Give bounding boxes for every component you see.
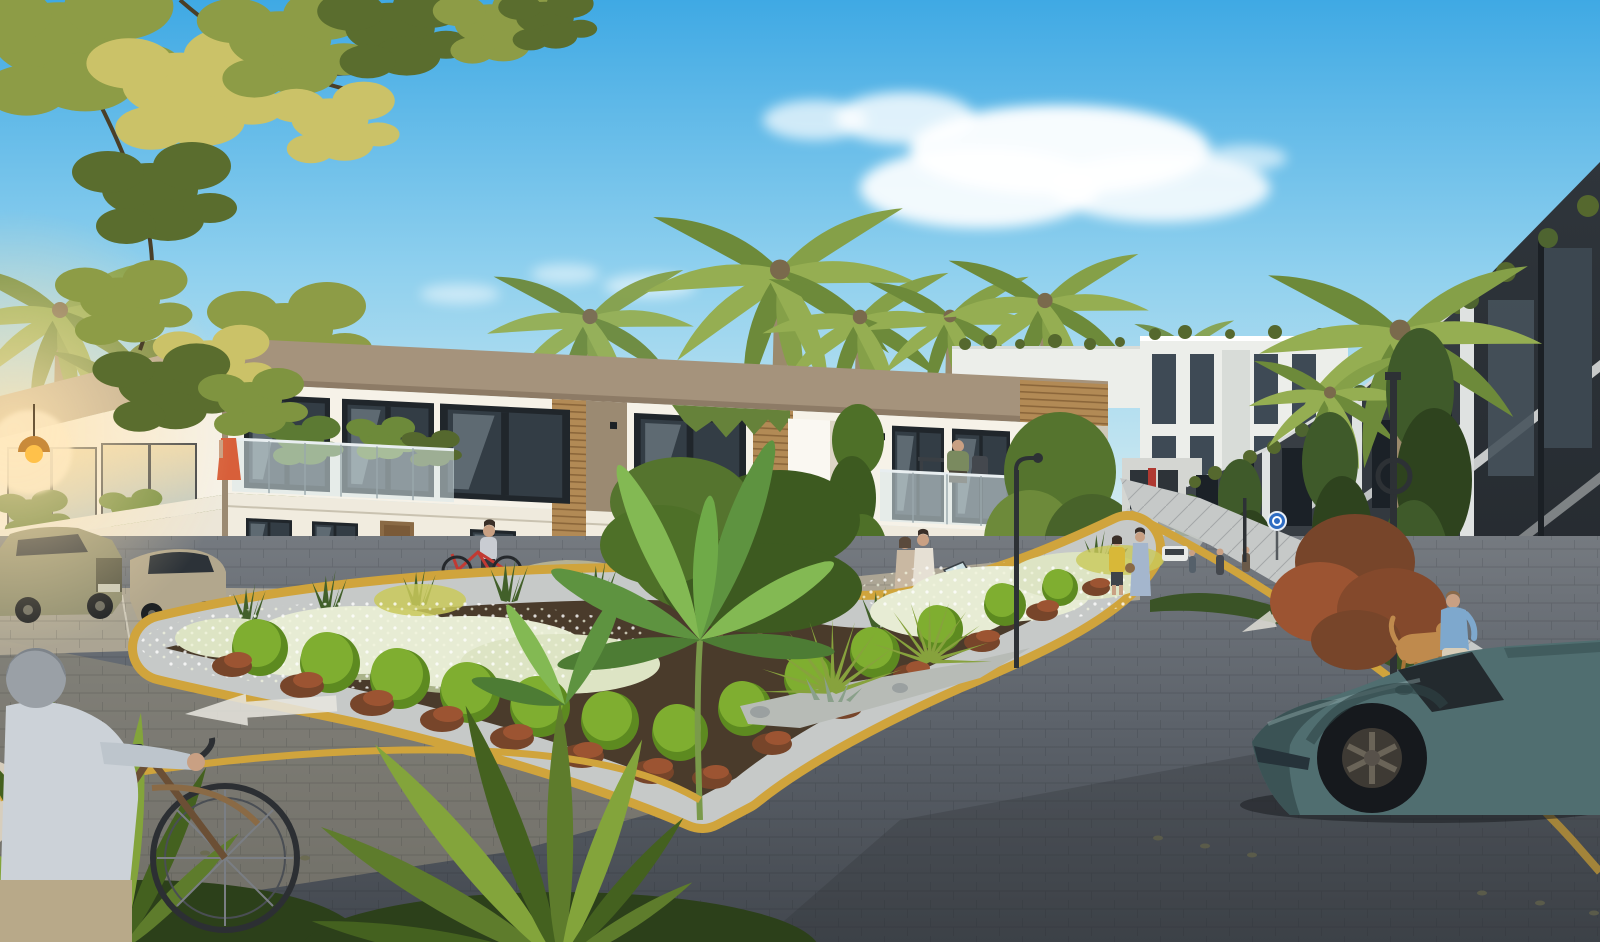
- render-viewport: [0, 0, 1600, 942]
- distant-white-van: [1162, 546, 1188, 561]
- scene-render: [0, 0, 1600, 942]
